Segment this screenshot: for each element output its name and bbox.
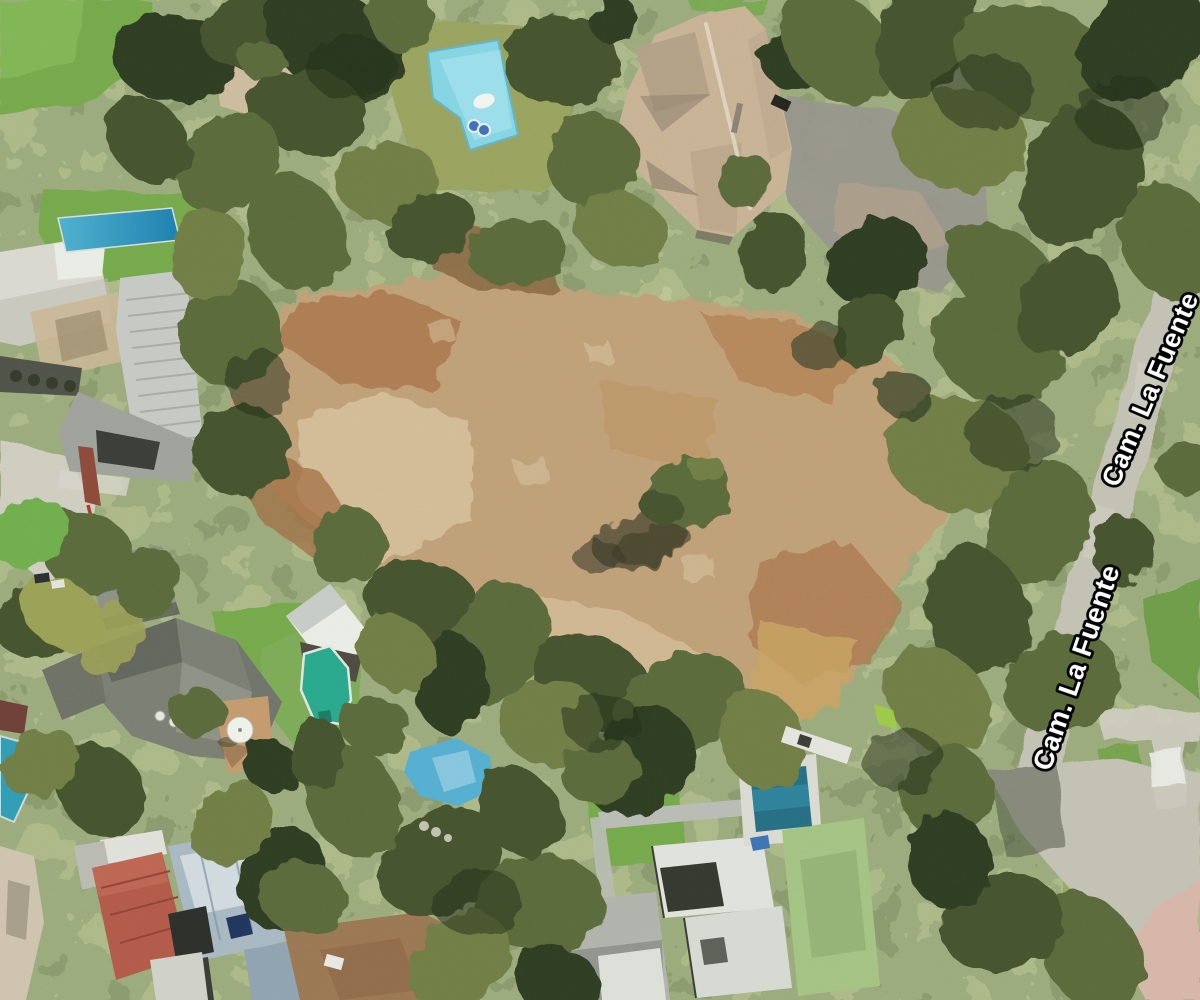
grain-overlay — [0, 0, 1200, 1000]
satellite-map-view[interactable]: Cam. La Fuente Cam. La Fuente — [0, 0, 1200, 1000]
satellite-canvas: Cam. La Fuente Cam. La Fuente — [0, 0, 1200, 1000]
